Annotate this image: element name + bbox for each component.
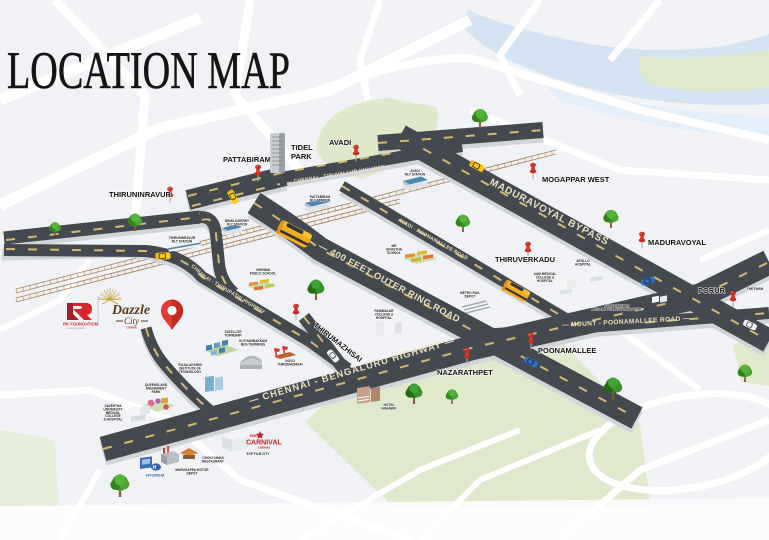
svg-text:TIDEL: TIDEL (291, 143, 313, 152)
svg-text:MEDICAL COLLEGE & HOSPITAL: MEDICAL COLLEGE & HOSPITAL (592, 307, 643, 311)
svg-text:TOWNSHIP: TOWNSHIP (224, 333, 242, 337)
svg-text:City: City (124, 316, 139, 326)
svg-text:HIGHWAY: HIGHWAY (382, 406, 398, 410)
svg-text:BUS TERMINUS: BUS TERMINUS (241, 342, 265, 346)
svg-text:RLY STATION: RLY STATION (227, 223, 248, 227)
svg-text:CHENNAI: CHENNAI (126, 327, 137, 330)
svg-text:AVADI: AVADI (329, 138, 351, 147)
svg-text:THE FARM: THE FARM (747, 287, 764, 291)
svg-text:DEPOT: DEPOT (187, 471, 198, 475)
svg-text:HOSPITAL: HOSPITAL (537, 279, 553, 283)
svg-text:H: H (153, 465, 157, 471)
svg-text:PARK: PARK (291, 152, 312, 161)
svg-text:CINEMAS: CINEMAS (258, 446, 270, 450)
svg-text:DEPOT: DEPOT (465, 294, 476, 298)
svg-text:HYUNDAI: HYUNDAI (146, 473, 164, 478)
svg-text:EVP FILM CITY: EVP FILM CITY (247, 452, 271, 456)
svg-text:& HOSPITAL: & HOSPITAL (103, 418, 122, 422)
svg-text:THIRUMAZHISAI: THIRUMAZHISAI (277, 362, 302, 366)
svg-text:PORUR: PORUR (698, 286, 726, 295)
svg-text:MADURAVOYAL: MADURAVOYAL (648, 238, 706, 247)
svg-text:HOSPITAL: HOSPITAL (376, 316, 392, 320)
svg-text:RLY STATION: RLY STATION (405, 173, 426, 177)
svg-text:RESTAURANT: RESTAURANT (202, 459, 224, 463)
svg-text:MOGAPPAR WEST: MOGAPPAR WEST (542, 175, 610, 184)
svg-text:NAZARATHPET: NAZARATHPET (437, 368, 493, 377)
svg-text:THIRUNINRAVUR: THIRUNINRAVUR (109, 190, 172, 199)
svg-text:TECHNOLOGY: TECHNOLOGY (179, 370, 202, 374)
svg-text:HOME IS WHERE: HOME IS WHERE (67, 328, 86, 330)
svg-text:PUBLIC SCHOOL: PUBLIC SCHOOL (250, 271, 276, 275)
svg-text:RLY STATION: RLY STATION (310, 199, 331, 203)
svg-text:RLY STATION: RLY STATION (172, 240, 193, 244)
svg-text:HOSPITAL: HOSPITAL (575, 262, 591, 266)
svg-text:LOCATION MAP: LOCATION MAP (7, 41, 290, 100)
svg-text:THIRUVERKADU: THIRUVERKADU (495, 255, 555, 264)
svg-text:SCHOOL: SCHOOL (387, 251, 401, 255)
svg-text:PARK: PARK (152, 390, 161, 394)
svg-text:CARNIVAL: CARNIVAL (246, 440, 282, 447)
svg-text:PATTABIRAM: PATTABIRAM (223, 155, 271, 164)
svg-text:RK FOUNDATION: RK FOUNDATION (63, 322, 98, 327)
svg-text:POONAMALLEE: POONAMALLEE (538, 346, 596, 355)
